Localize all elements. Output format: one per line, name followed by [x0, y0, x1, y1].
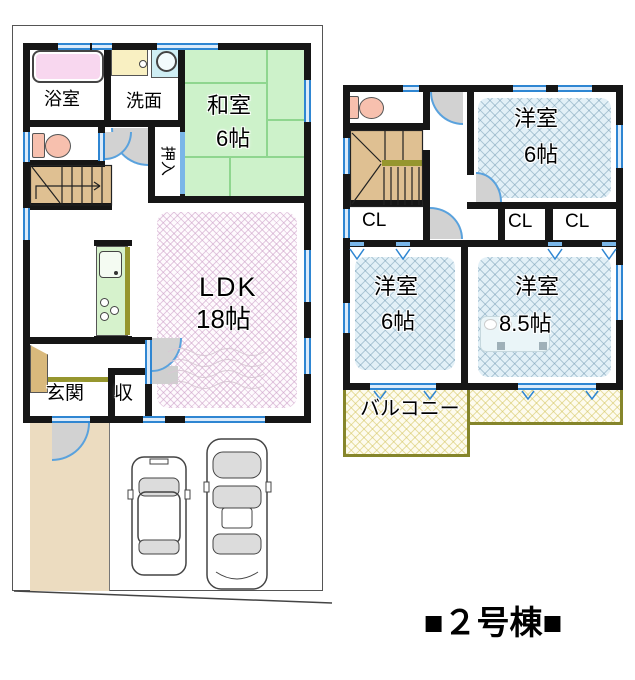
room-label-western-room-left-size: 6帖: [381, 310, 415, 333]
closet-label: CL: [362, 211, 386, 231]
stairs-2f-lines: [351, 131, 423, 207]
stairs-1f-lines: [31, 165, 112, 205]
room-label-futon-closet: 押入: [159, 141, 175, 181]
rug-pattern: [168, 349, 264, 389]
lineart-overlay: [0, 0, 635, 680]
balcony-label: バルコニー: [360, 399, 460, 420]
room-label-bath: 浴室: [44, 90, 80, 109]
closet-label: CL: [565, 212, 589, 232]
room-label-western-room-right-size: 8.5帖: [499, 312, 552, 335]
floorplan: 浴室 洗面 和室 6帖 押入 LDK 18帖 玄関 収 洋室 6帖 CL CL …: [0, 0, 635, 680]
room-label-storage: 収: [114, 384, 133, 404]
room-label-western-room-top: 洋室: [514, 107, 558, 130]
road-line: [14, 591, 332, 603]
closet-label: CL: [508, 212, 532, 232]
room-label-entrance: 玄関: [46, 384, 84, 404]
room-label-japanese-room: 和室: [207, 94, 251, 117]
building-caption: ■２号棟■: [358, 606, 628, 641]
room-label-western-room-right: 洋室: [515, 275, 559, 298]
room-label-western-room-top-size: 6帖: [524, 143, 558, 166]
car-icon: [128, 457, 190, 575]
car-icon: [204, 439, 271, 589]
room-label-ldk-size: 18帖: [196, 306, 251, 333]
room-label-ldk: LDK: [199, 273, 258, 301]
room-label-western-room-left: 洋室: [374, 275, 418, 298]
room-label-washroom: 洗面: [126, 92, 162, 111]
room-label-japanese-room-size: 6帖: [216, 127, 250, 150]
